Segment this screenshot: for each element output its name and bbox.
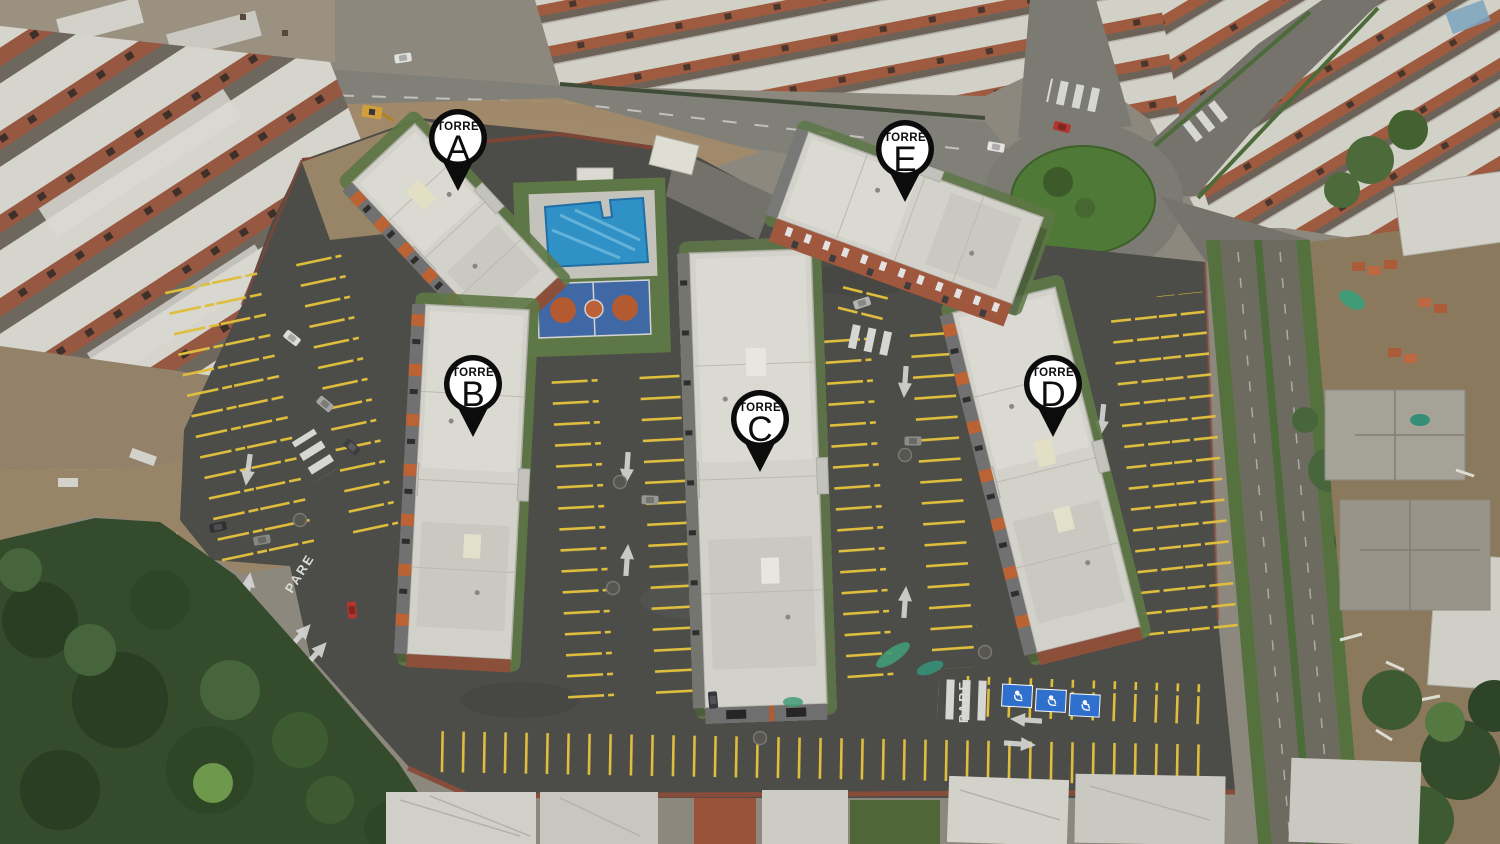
marker-letter-label: D: [1021, 376, 1085, 415]
map-marker-torre-e[interactable]: TORRE E: [873, 119, 937, 203]
marker-letter-label: E: [873, 141, 937, 180]
marker-letter-label: A: [426, 130, 490, 169]
marker-letter-label: C: [728, 411, 792, 450]
map-marker-torre-d[interactable]: TORRE D: [1021, 354, 1085, 438]
map-marker-torre-a[interactable]: TORRE A: [426, 108, 490, 192]
aerial-site-photo: PARE PARE: [0, 0, 1500, 844]
map-marker-torre-b[interactable]: TORRE B: [441, 354, 505, 438]
map-marker-torre-c[interactable]: TORRE C: [728, 389, 792, 473]
marker-letter-label: B: [441, 376, 505, 415]
